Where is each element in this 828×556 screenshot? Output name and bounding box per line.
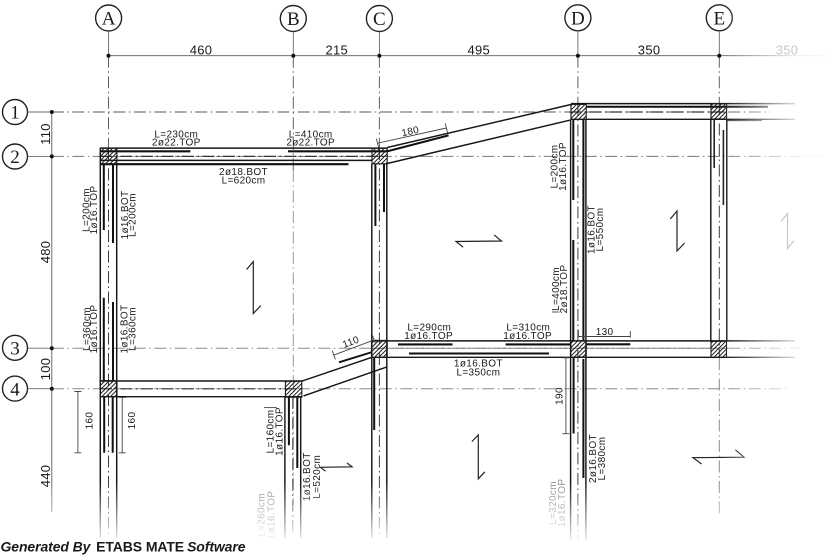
- svg-text:460: 460: [190, 43, 213, 58]
- svg-text:L=380cm: L=380cm: [597, 437, 608, 481]
- svg-text:130: 130: [596, 327, 614, 338]
- svg-text:480: 480: [38, 241, 53, 264]
- svg-text:4: 4: [10, 379, 20, 400]
- svg-text:2ø18.TOP: 2ø18.TOP: [559, 265, 570, 314]
- svg-text:L=550cm: L=550cm: [595, 208, 606, 252]
- svg-text:L=360cm: L=360cm: [127, 307, 138, 351]
- svg-text:Generated By ETABS MATESoftwar: Generated By ETABS MATESoftware: [1, 539, 246, 555]
- svg-text:2: 2: [10, 147, 20, 168]
- svg-text:160: 160: [127, 412, 138, 430]
- svg-text:190: 190: [555, 387, 566, 405]
- svg-text:1ø16.TOP: 1ø16.TOP: [89, 305, 100, 354]
- svg-text:100: 100: [38, 358, 53, 381]
- svg-text:1: 1: [10, 103, 20, 124]
- svg-text:C: C: [373, 9, 386, 30]
- svg-text:1ø16.TOP: 1ø16.TOP: [404, 331, 453, 342]
- svg-text:1ø16.TOP: 1ø16.TOP: [89, 186, 100, 235]
- svg-text:A: A: [102, 9, 116, 30]
- svg-text:180: 180: [401, 125, 421, 140]
- svg-text:350: 350: [638, 43, 661, 58]
- svg-text:110: 110: [341, 334, 361, 350]
- svg-text:110: 110: [38, 123, 53, 145]
- svg-text:2ø22.TOP: 2ø22.TOP: [152, 138, 201, 149]
- svg-text:2ø22.TOP: 2ø22.TOP: [286, 138, 335, 149]
- svg-text:L=350cm: L=350cm: [456, 367, 500, 378]
- svg-text:D: D: [571, 9, 585, 30]
- svg-text:350: 350: [776, 43, 799, 58]
- svg-text:495: 495: [468, 43, 491, 58]
- svg-text:L=200cm: L=200cm: [127, 193, 138, 237]
- svg-text:1ø16.TOP: 1ø16.TOP: [503, 331, 552, 342]
- svg-text:160: 160: [85, 412, 96, 430]
- svg-text:L=620cm: L=620cm: [222, 175, 266, 186]
- svg-text:B: B: [287, 9, 300, 30]
- svg-text:1ø16.TOP: 1ø16.TOP: [275, 407, 286, 456]
- svg-text:3: 3: [10, 339, 20, 360]
- svg-text:215: 215: [326, 43, 349, 58]
- svg-text:1ø16.TOP: 1ø16.TOP: [558, 142, 569, 191]
